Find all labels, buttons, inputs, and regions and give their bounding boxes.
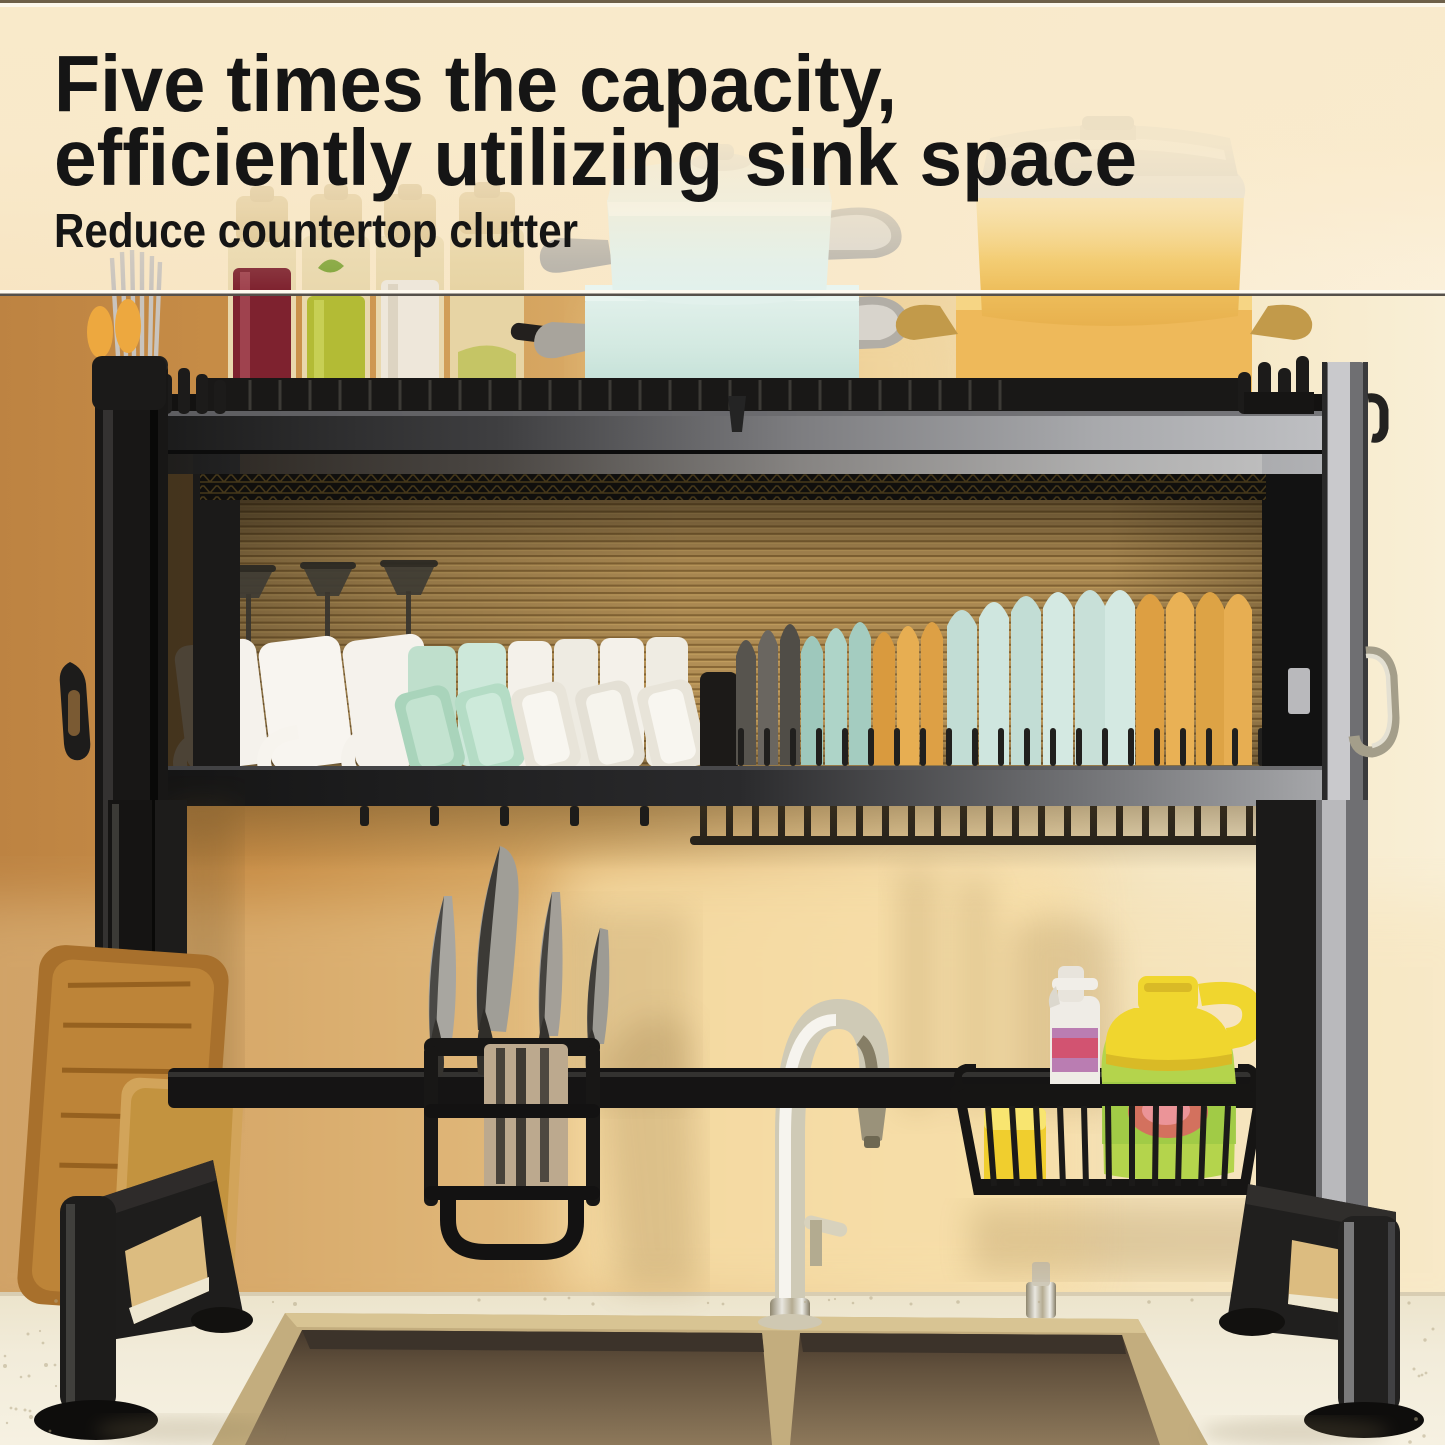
svg-text:efficiently utilizing sink spa: efficiently utilizing sink space <box>54 113 1137 202</box>
svg-text:Reduce countertop clutter: Reduce countertop clutter <box>54 205 578 258</box>
